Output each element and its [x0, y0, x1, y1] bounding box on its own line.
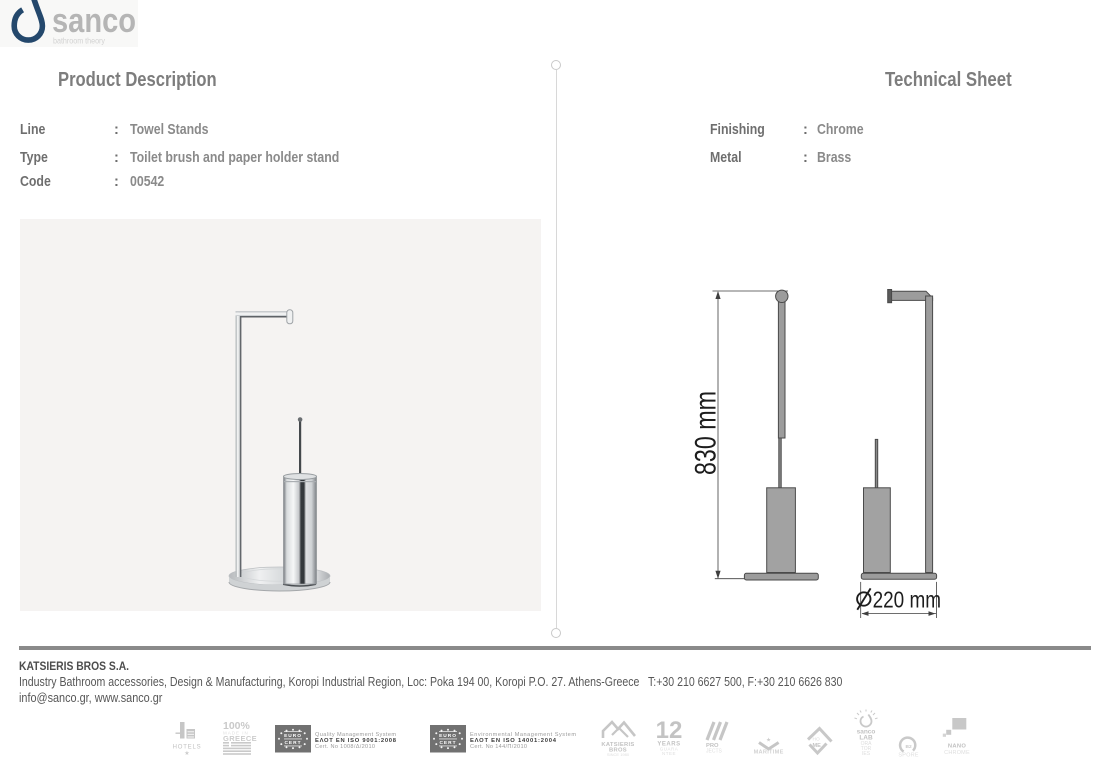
svg-text:EURO: EURO — [439, 733, 457, 739]
svg-text:SPORE: SPORE — [898, 753, 918, 759]
svg-text:EURO: EURO — [284, 733, 302, 739]
svg-text:NTEE: NTEE — [662, 751, 676, 756]
svg-text:bathroom theory: bathroom theory — [53, 37, 105, 46]
svg-text:NANO: NANO — [948, 743, 966, 749]
svg-text:CHROME: CHROME — [944, 750, 970, 756]
svg-text:12: 12 — [656, 717, 683, 744]
svg-text:HOTELS: HOTELS — [173, 745, 202, 751]
svg-text:sanco: sanco — [52, 2, 136, 40]
svg-text:220 mm: 220 mm — [873, 587, 941, 613]
svg-text:★: ★ — [766, 737, 771, 744]
svg-text:830 mm: 830 mm — [690, 391, 723, 475]
svg-text:★: ★ — [184, 750, 189, 757]
svg-text:Cert. No 1008/Δ/2010: Cert. No 1008/Δ/2010 — [315, 744, 375, 750]
svg-text:JECTS: JECTS — [706, 749, 723, 755]
svg-text:B2: B2 — [906, 744, 912, 750]
svg-text:ME: ME — [813, 743, 822, 749]
svg-text:Cert. No 144/Π/2010: Cert. No 144/Π/2010 — [470, 744, 527, 750]
svg-text:CERT: CERT — [439, 740, 456, 746]
svg-text:IES: IES — [862, 751, 871, 757]
svg-text:CERT: CERT — [284, 740, 301, 746]
svg-text:MARITIME: MARITIME — [754, 749, 784, 755]
svg-text:HO: HO — [813, 737, 820, 743]
svg-text:SINCE 1980: SINCE 1980 — [607, 752, 630, 757]
svg-text:GREECE: GREECE — [223, 734, 257, 743]
